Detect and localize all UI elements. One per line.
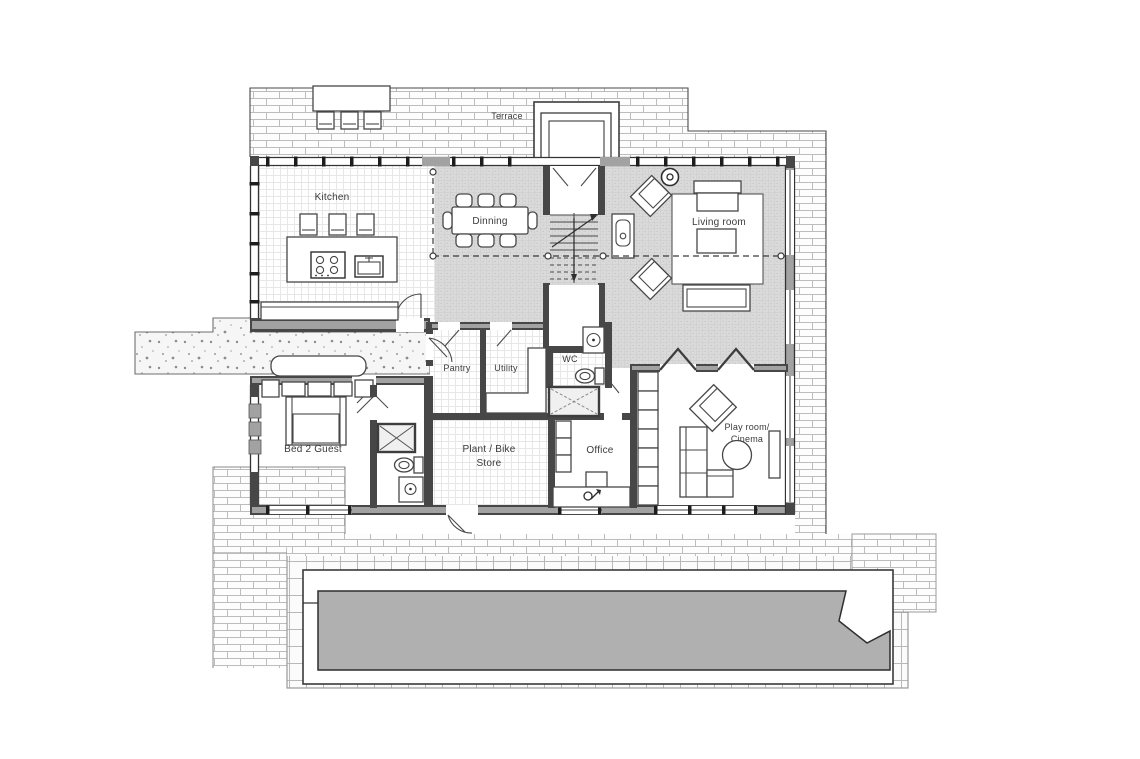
entry-bench [271, 356, 366, 376]
terrace-bar [313, 86, 390, 129]
pool-area [287, 534, 936, 688]
ensuite-toilet-icon [395, 457, 424, 473]
office-shelves [556, 421, 571, 472]
bar-stool [364, 112, 381, 129]
terrace-label: Terrace [491, 111, 522, 121]
kitchen-counter [261, 302, 398, 320]
dining-table: Dinning [443, 207, 537, 234]
tv-unit [769, 431, 780, 478]
bar-stool [341, 112, 358, 129]
wall-bedroom-east [424, 376, 433, 515]
pantry-label: Pantry [443, 363, 471, 373]
plant-store-label-2: Store [477, 458, 502, 469]
window-south [266, 506, 352, 515]
cooktop-icon [311, 252, 345, 278]
hall-shower [549, 387, 599, 416]
kitchen-label: Kitchen [315, 192, 350, 203]
floor-plan-drawing: Terrace [0, 0, 1140, 759]
window-south-playroom [654, 506, 758, 515]
dining-label: Dinning [472, 216, 507, 227]
glazed-wall-north [250, 156, 795, 167]
entry-porch-steps [534, 102, 619, 166]
wall-east [785, 156, 795, 515]
floor-plan-page: Terrace [0, 0, 1140, 759]
island-stool [300, 214, 317, 235]
island-stool [329, 214, 346, 235]
sink-icon [355, 256, 383, 277]
wc-basin-icon [583, 327, 604, 353]
utility-label: Utility [494, 363, 518, 373]
office-label: Office [586, 445, 613, 456]
wood-stove-icon [612, 214, 634, 258]
playroom-shelf-column [638, 372, 658, 505]
bar-stool [317, 112, 334, 129]
pantry: Pantry [443, 363, 471, 373]
living-room-label: Living room [692, 217, 746, 228]
pool-brick-band [287, 534, 852, 556]
ensuite-shower-icon [378, 424, 415, 452]
pool-water [318, 591, 890, 670]
glazed-wall-west-kitchen [250, 166, 260, 320]
wc-toilet-icon [576, 368, 605, 384]
ensuite-basin-icon [399, 477, 423, 502]
playroom-label-1: Play room/ [724, 422, 769, 432]
round-table [723, 441, 752, 470]
office-side-table [586, 472, 607, 487]
hall-floor [612, 322, 785, 368]
wc-label: WC [562, 354, 578, 364]
coffee-table [697, 229, 736, 253]
island-stool [357, 214, 374, 235]
window-east [786, 170, 794, 502]
sideboard [683, 285, 750, 311]
plant-store-label-1: Plant / Bike [463, 444, 516, 455]
sofa [694, 181, 741, 211]
pendant-light-icon [662, 169, 679, 186]
